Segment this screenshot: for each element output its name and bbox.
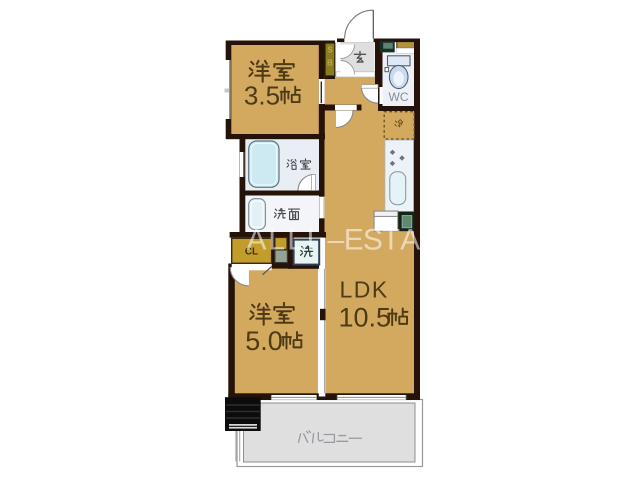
svg-text:L: L: [287, 224, 304, 257]
svg-text:E: E: [344, 224, 364, 257]
svg-text:3.5: 3.5: [244, 81, 280, 111]
svg-text:A: A: [247, 224, 267, 257]
svg-text:WC: WC: [389, 90, 409, 104]
svg-text:S: S: [327, 46, 333, 55]
svg-text:–: –: [328, 224, 345, 257]
svg-text:L: L: [268, 224, 285, 257]
svg-text:T: T: [382, 224, 400, 257]
svg-text:10.5: 10.5: [339, 303, 392, 333]
svg-text:B: B: [327, 59, 333, 68]
svg-text:E: E: [440, 224, 460, 257]
svg-text:5.0: 5.0: [245, 326, 283, 356]
svg-text:S: S: [363, 224, 383, 257]
svg-text:T: T: [421, 224, 439, 257]
svg-text:LDK: LDK: [340, 277, 389, 303]
svg-text:I: I: [306, 224, 314, 257]
svg-text:A: A: [400, 224, 420, 257]
